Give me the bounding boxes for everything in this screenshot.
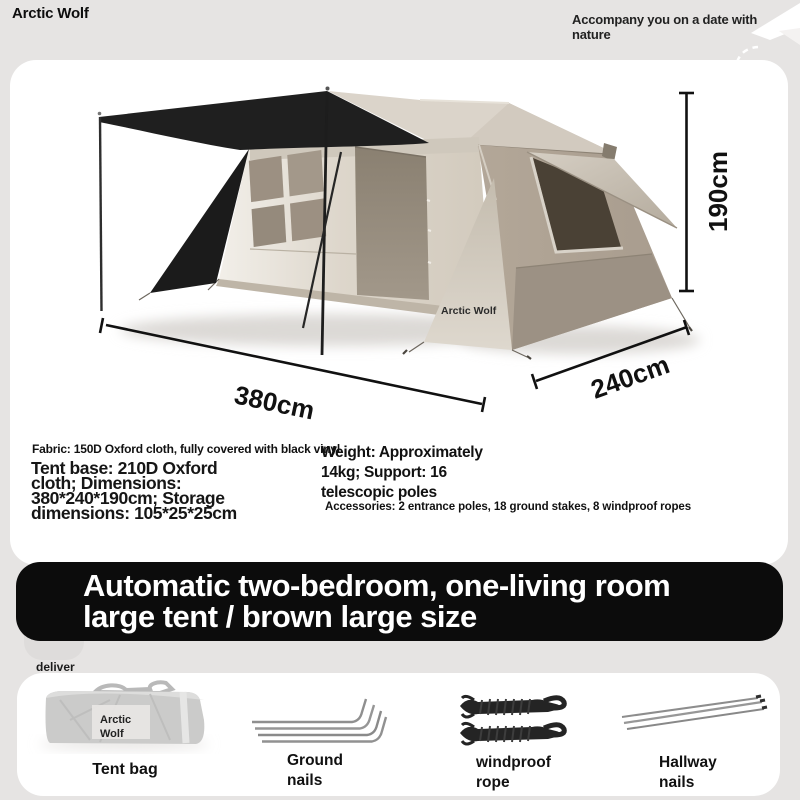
svg-text:Wolf: Wolf xyxy=(100,728,124,740)
svg-text:380cm: 380cm xyxy=(232,380,317,426)
svg-text:Arctic: Arctic xyxy=(100,714,131,726)
svg-text:190cm: 190cm xyxy=(703,151,733,232)
svg-text:Arctic Wolf: Arctic Wolf xyxy=(441,305,497,317)
